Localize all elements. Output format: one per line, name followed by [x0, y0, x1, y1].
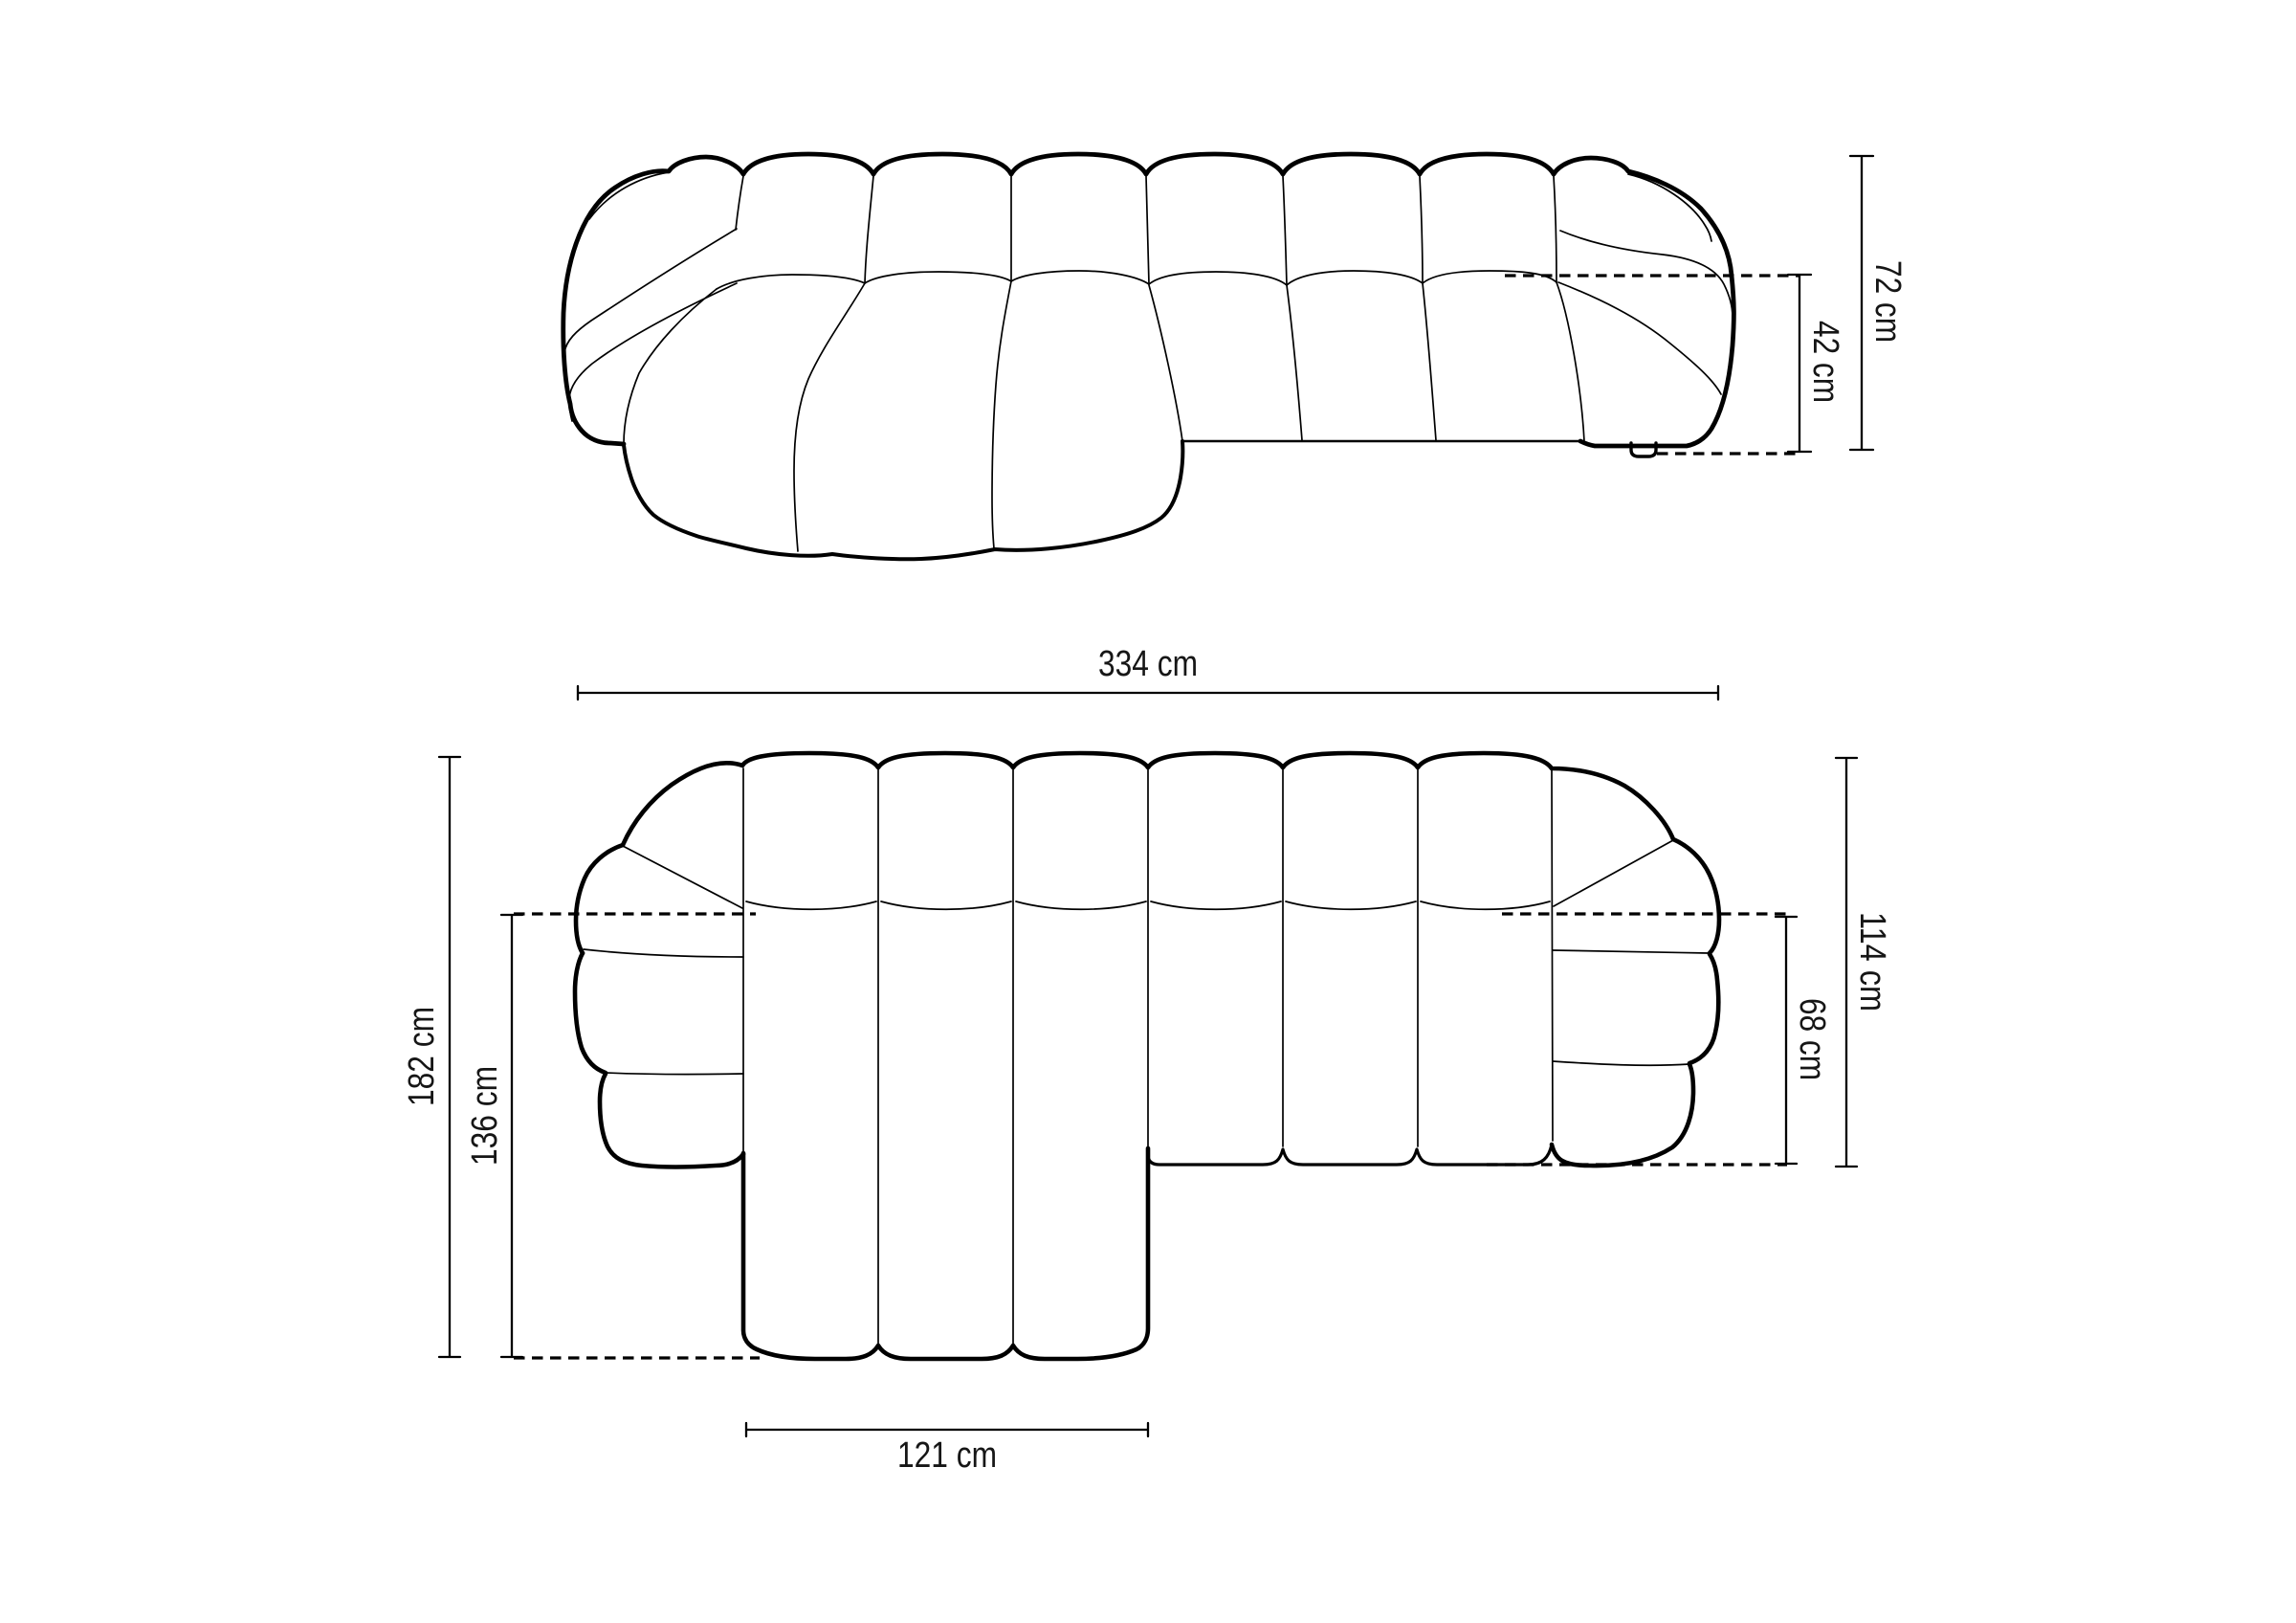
svg-text:68 cm: 68 cm [1792, 998, 1832, 1080]
svg-text:334 cm: 334 cm [1098, 644, 1198, 684]
svg-text:182 cm: 182 cm [402, 1007, 442, 1106]
svg-text:136 cm: 136 cm [465, 1066, 505, 1166]
svg-text:72 cm: 72 cm [1867, 260, 1908, 343]
svg-text:42 cm: 42 cm [1805, 321, 1845, 403]
svg-text:121 cm: 121 cm [897, 1435, 997, 1476]
svg-text:114 cm: 114 cm [1852, 912, 1892, 1012]
